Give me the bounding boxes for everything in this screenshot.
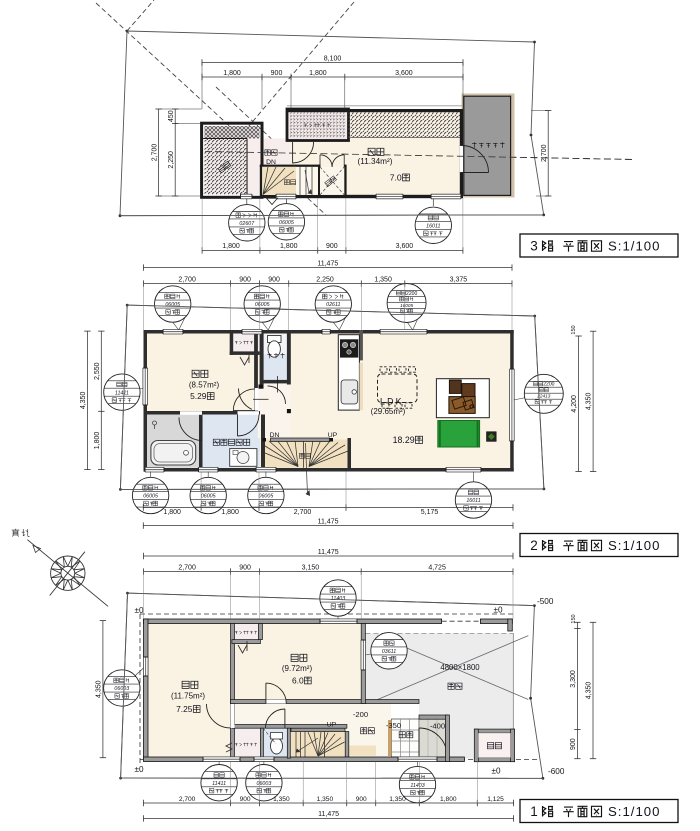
svg-text:1,125: 1,125 bbox=[487, 796, 504, 803]
svg-text:11,475: 11,475 bbox=[318, 811, 339, 818]
svg-text:DN: DN bbox=[266, 159, 276, 166]
svg-text:16011: 16011 bbox=[426, 224, 440, 230]
svg-text:2,250: 2,250 bbox=[316, 276, 334, 283]
svg-text:4800×1800: 4800×1800 bbox=[440, 663, 480, 672]
svg-text:11,475: 11,475 bbox=[318, 549, 339, 556]
svg-text:2200: 2200 bbox=[406, 291, 417, 297]
svg-text:4,350: 4,350 bbox=[96, 680, 103, 698]
svg-text:1,800: 1,800 bbox=[221, 509, 239, 516]
svg-text:2: 2 bbox=[530, 538, 538, 553]
svg-text:900: 900 bbox=[268, 276, 280, 283]
svg-text:900: 900 bbox=[240, 796, 251, 803]
svg-text:3,600: 3,600 bbox=[396, 243, 414, 250]
svg-text:5,175: 5,175 bbox=[421, 509, 439, 516]
svg-text:7.0: 7.0 bbox=[390, 173, 402, 183]
svg-text:06003: 06003 bbox=[257, 781, 272, 787]
svg-text:11,475: 11,475 bbox=[317, 260, 338, 267]
svg-text:-600: -600 bbox=[548, 767, 565, 776]
svg-text:(11.34m²): (11.34m²) bbox=[358, 157, 393, 166]
svg-text:06005: 06005 bbox=[143, 494, 158, 500]
svg-text:02607: 02607 bbox=[239, 221, 255, 227]
svg-text:16005: 16005 bbox=[400, 303, 413, 308]
svg-text:450: 450 bbox=[168, 110, 175, 122]
svg-text:UP: UP bbox=[327, 722, 337, 729]
svg-text:1,800: 1,800 bbox=[222, 243, 240, 250]
svg-text:2,700: 2,700 bbox=[178, 564, 196, 571]
svg-text:±0: ±0 bbox=[491, 767, 500, 776]
svg-text:4,350: 4,350 bbox=[586, 682, 593, 700]
svg-text:(11.75m²): (11.75m²) bbox=[171, 692, 205, 701]
svg-text:1,800: 1,800 bbox=[163, 509, 181, 516]
svg-text:5.29: 5.29 bbox=[190, 391, 207, 401]
svg-text:1,350: 1,350 bbox=[374, 276, 392, 283]
svg-text:4,350: 4,350 bbox=[586, 393, 593, 411]
svg-text:1,350: 1,350 bbox=[317, 796, 334, 803]
svg-text:11,475: 11,475 bbox=[318, 518, 339, 525]
svg-text:2,700: 2,700 bbox=[151, 144, 158, 162]
svg-text:3,150: 3,150 bbox=[302, 564, 320, 571]
svg-text:1: 1 bbox=[530, 804, 538, 819]
svg-text:06005: 06005 bbox=[165, 302, 180, 308]
svg-text:3,600: 3,600 bbox=[395, 70, 413, 77]
svg-text:1,800: 1,800 bbox=[440, 796, 457, 803]
svg-text:2,250: 2,250 bbox=[168, 151, 175, 169]
svg-text:-350: -350 bbox=[386, 721, 401, 730]
svg-text:4,200: 4,200 bbox=[571, 395, 578, 413]
svg-text:-500: -500 bbox=[537, 597, 554, 606]
svg-text:11411: 11411 bbox=[212, 781, 226, 787]
svg-text:7.25: 7.25 bbox=[176, 704, 193, 714]
svg-text:1,800: 1,800 bbox=[280, 243, 298, 250]
svg-text:150: 150 bbox=[571, 614, 577, 623]
svg-text:02611: 02611 bbox=[326, 302, 340, 308]
svg-text:2,700: 2,700 bbox=[294, 509, 312, 516]
svg-text:900: 900 bbox=[356, 796, 367, 803]
svg-text:03611: 03611 bbox=[382, 649, 396, 655]
svg-text:4,350: 4,350 bbox=[80, 392, 87, 410]
svg-text:18.29: 18.29 bbox=[393, 435, 415, 445]
svg-text:S:1/100: S:1/100 bbox=[608, 538, 660, 553]
svg-text:3,300: 3,300 bbox=[570, 670, 577, 688]
svg-text:1,350: 1,350 bbox=[389, 796, 406, 803]
svg-text:11403: 11403 bbox=[410, 783, 424, 789]
svg-text:2200: 2200 bbox=[543, 382, 554, 388]
svg-text:6.0: 6.0 bbox=[292, 676, 304, 686]
svg-text:3: 3 bbox=[530, 239, 538, 254]
svg-text:S:1/100: S:1/100 bbox=[608, 804, 660, 819]
svg-text:-400: -400 bbox=[430, 722, 445, 731]
svg-text:900: 900 bbox=[239, 276, 251, 283]
svg-text:4,725: 4,725 bbox=[428, 564, 446, 571]
svg-text:06005: 06005 bbox=[279, 220, 294, 226]
svg-text:900: 900 bbox=[326, 243, 338, 250]
svg-text:06005: 06005 bbox=[259, 494, 274, 500]
svg-text:1,800: 1,800 bbox=[94, 432, 101, 450]
svg-text:2,700: 2,700 bbox=[541, 144, 548, 162]
svg-text:900: 900 bbox=[239, 564, 251, 571]
svg-text:1,800: 1,800 bbox=[309, 70, 327, 77]
svg-text:±0: ±0 bbox=[134, 765, 143, 774]
svg-text:06005: 06005 bbox=[255, 302, 270, 308]
svg-text:2,700: 2,700 bbox=[179, 796, 196, 803]
svg-text:(9.72m²): (9.72m²) bbox=[282, 664, 313, 673]
svg-text:06005: 06005 bbox=[201, 494, 216, 500]
svg-text:S:1/100: S:1/100 bbox=[608, 239, 660, 254]
svg-text:3,375: 3,375 bbox=[450, 276, 468, 283]
svg-text:DN: DN bbox=[270, 432, 280, 439]
svg-text:16011: 16011 bbox=[466, 498, 480, 504]
svg-text:11411: 11411 bbox=[115, 390, 129, 396]
svg-text:1,350: 1,350 bbox=[273, 796, 290, 803]
svg-text:06003: 06003 bbox=[114, 686, 129, 692]
svg-text:LDK: LDK bbox=[380, 397, 404, 407]
svg-text:(29.65m²): (29.65m²) bbox=[371, 407, 406, 416]
svg-text:900: 900 bbox=[570, 738, 577, 750]
svg-text:-200: -200 bbox=[353, 710, 368, 719]
svg-text:±0: ±0 bbox=[493, 606, 502, 615]
svg-text:150: 150 bbox=[571, 325, 577, 334]
svg-text:(8.57m²): (8.57m²) bbox=[189, 381, 220, 390]
svg-text:1,800: 1,800 bbox=[223, 70, 241, 77]
svg-text:UP: UP bbox=[328, 432, 338, 439]
svg-text:8,100: 8,100 bbox=[324, 55, 342, 62]
svg-text:2,700: 2,700 bbox=[178, 276, 196, 283]
svg-text:2,550: 2,550 bbox=[94, 362, 101, 380]
svg-text:900: 900 bbox=[271, 70, 283, 77]
